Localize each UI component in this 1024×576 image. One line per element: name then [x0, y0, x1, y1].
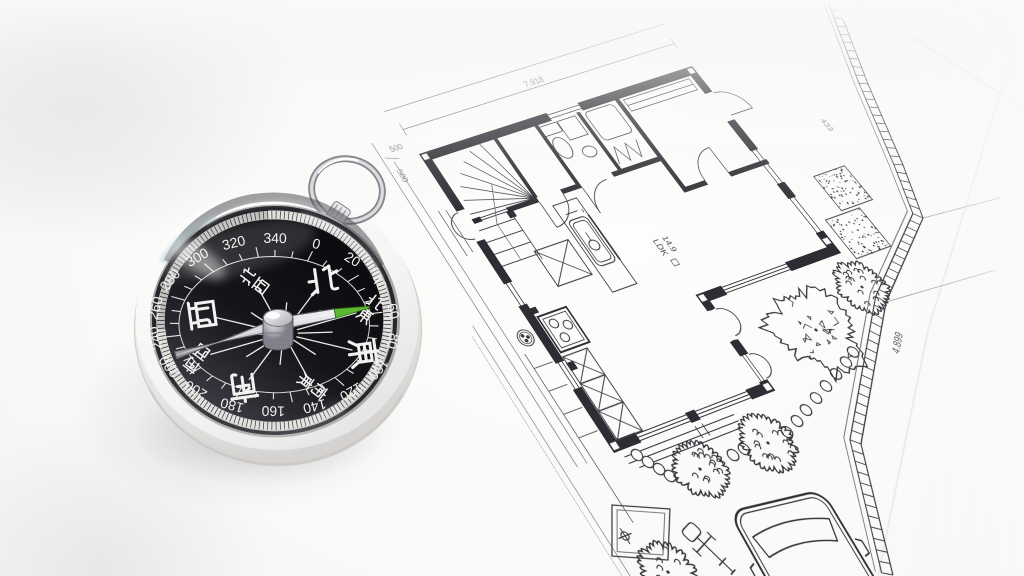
svg-text:160: 160 — [261, 403, 285, 419]
